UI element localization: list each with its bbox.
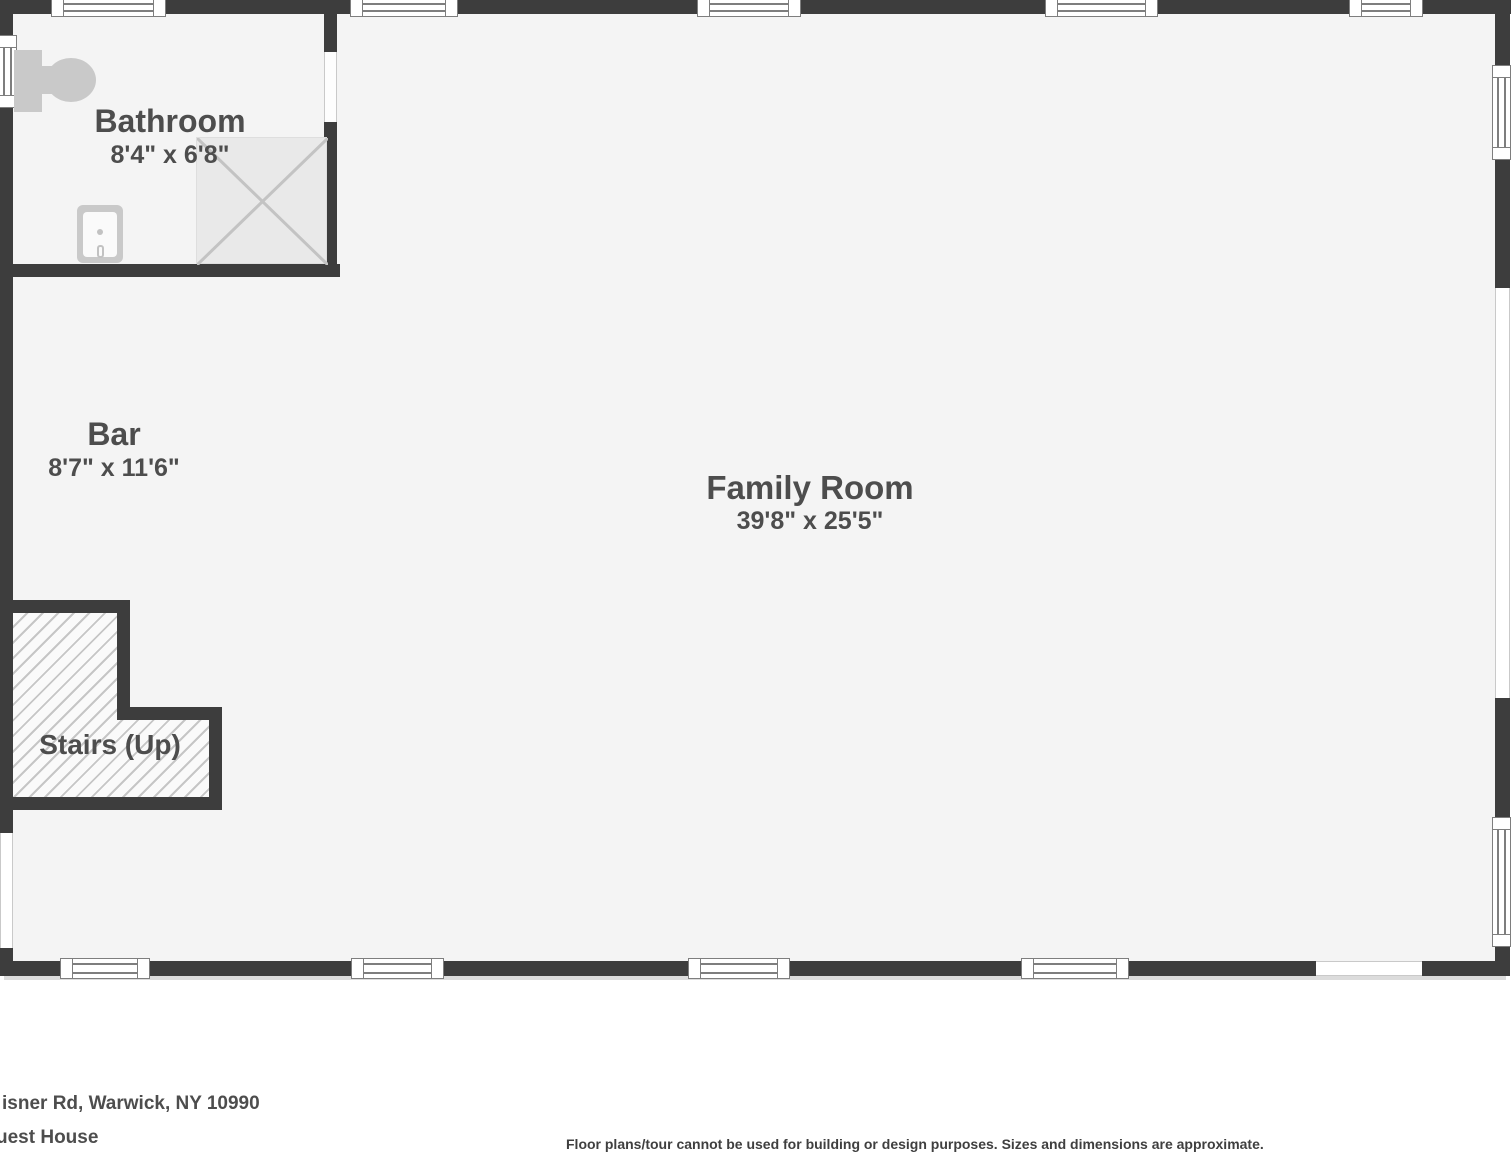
sink-drain — [97, 229, 103, 235]
stairs-wall-bottom — [8, 797, 222, 810]
window-symbol — [350, 0, 458, 17]
stairs-wall-top — [8, 600, 130, 613]
floor-plan: Bathroom 8'4" x 6'8" Bar 8'7" x 11'6" Fa… — [0, 0, 1511, 1152]
family-room-label: Family Room — [706, 470, 913, 506]
window-symbol — [1021, 958, 1129, 979]
stairs-wall-right-upper — [117, 600, 130, 720]
building-name-text: uest House — [0, 1127, 98, 1149]
wall-left — [0, 0, 13, 975]
window-symbol — [51, 0, 166, 17]
bar-label: Bar — [87, 417, 140, 452]
stairs-label: Stairs (Up) — [39, 730, 181, 761]
window-symbol — [1045, 0, 1158, 17]
toilet-bowl — [46, 58, 96, 102]
window-symbol — [351, 958, 444, 979]
window-symbol — [688, 958, 790, 979]
stairs-wall-step — [117, 707, 222, 720]
disclaimer-text: Floor plans/tour cannot be used for buil… — [566, 1136, 1264, 1152]
bar-dimensions: 8'7" x 11'6" — [48, 455, 180, 483]
bathroom-dimensions: 8'4" x 6'8" — [110, 142, 229, 170]
sink-faucet — [97, 245, 104, 258]
window-symbol — [697, 0, 801, 17]
left-door-opening — [0, 833, 13, 948]
window-symbol — [60, 958, 150, 979]
bathroom-wall-right-upper — [324, 0, 337, 52]
window-symbol — [1492, 65, 1511, 160]
window-symbol — [1349, 0, 1423, 17]
bathroom-label: Bathroom — [94, 104, 245, 139]
window-symbol — [1492, 817, 1511, 947]
address-text: isner Rd, Warwick, NY 10990 — [2, 1093, 260, 1115]
right-wall-opening — [1495, 288, 1510, 698]
toilet-icon — [14, 50, 42, 112]
bottom-wall-opening — [1316, 961, 1422, 976]
bathroom-door-opening — [324, 52, 337, 122]
stairs-wall-right-lower — [209, 707, 222, 810]
family-room-dimensions: 39'8" x 25'5" — [737, 508, 884, 536]
bathroom-wall-bottom — [0, 264, 340, 277]
